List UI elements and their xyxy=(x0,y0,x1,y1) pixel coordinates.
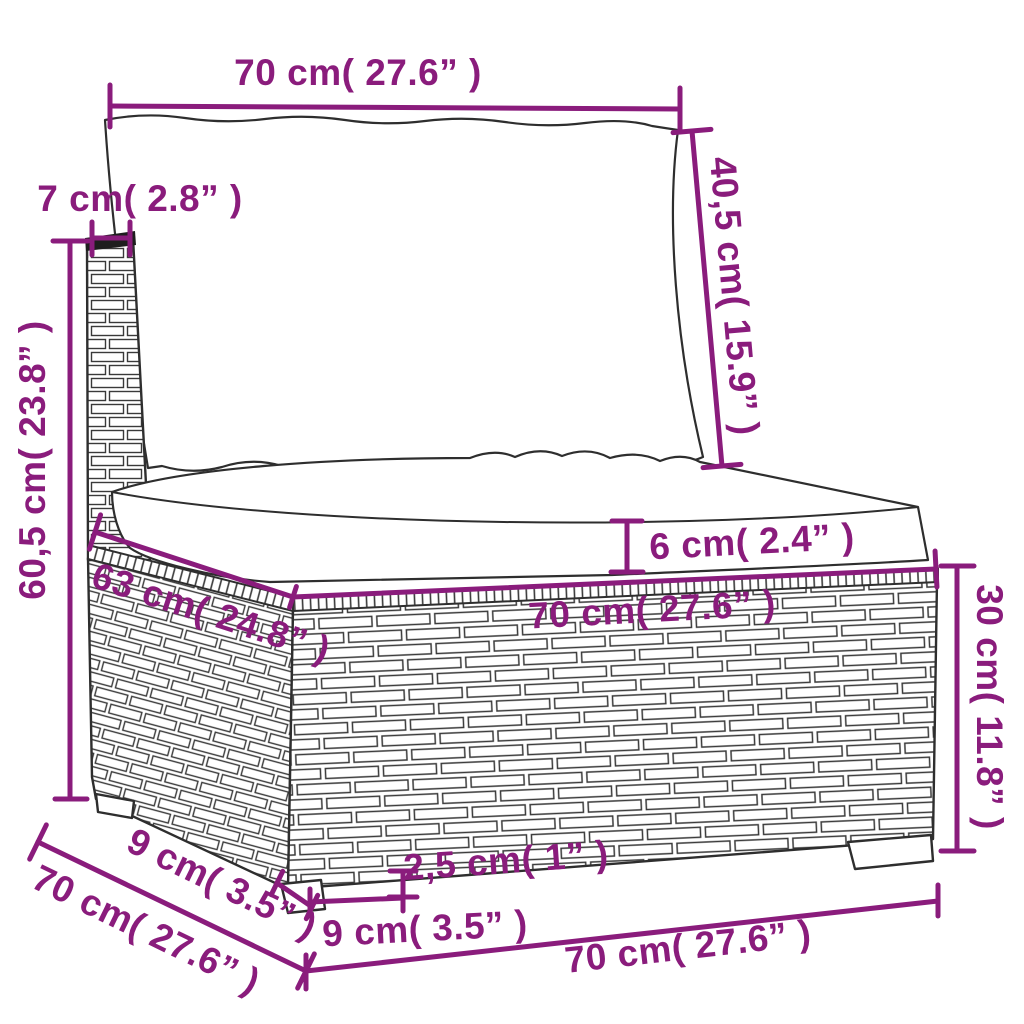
leg-front-right xyxy=(848,835,933,869)
dim-total-height-label: 60,5 cm( 23.8” ) xyxy=(12,320,54,599)
dim-post-width-label: 7 cm( 2.8” ) xyxy=(37,178,242,220)
dim-total-height-line xyxy=(53,241,88,799)
dim-top-width-label: 70 cm( 27.6” ) xyxy=(234,52,482,94)
dim-base-height-label: 30 cm( 11.8” ) xyxy=(968,584,1010,830)
dimension-diagram: 70 cm( 27.6” ) 40,5 cm( 15.9” ) 7 cm( 2.… xyxy=(0,0,1024,1024)
backrest-cushion xyxy=(105,115,703,472)
